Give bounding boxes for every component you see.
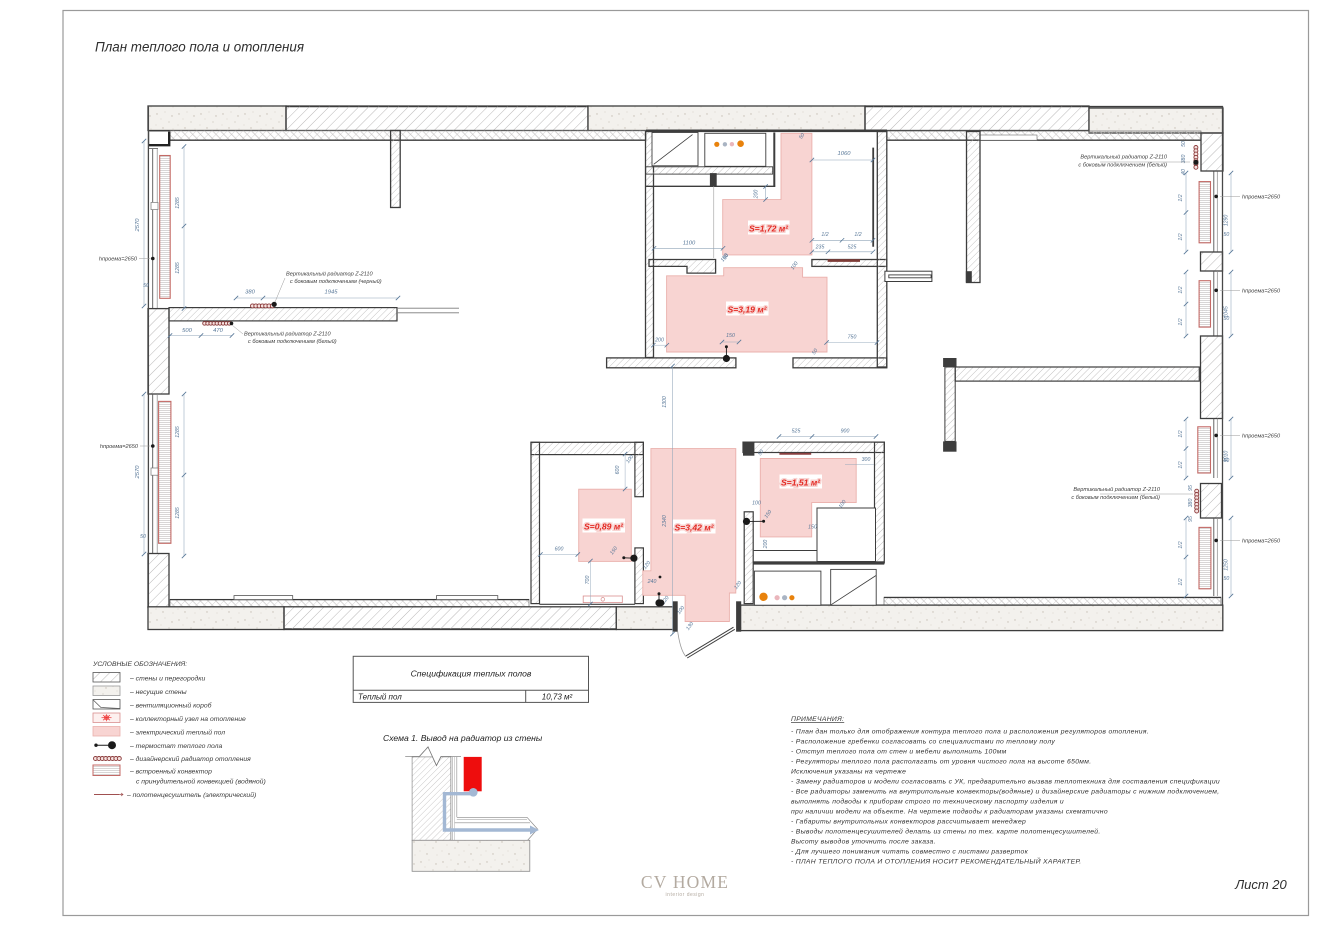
svg-text:hпроема=2650: hпроема=2650 <box>99 257 138 263</box>
svg-text:1250: 1250 <box>1224 559 1230 571</box>
svg-text:Вертикальный радиатор Z-2110: Вертикальный радиатор Z-2110 <box>1080 154 1167 161</box>
svg-text:Вертикальный радиатор Z-2110: Вертикальный радиатор Z-2110 <box>1073 486 1160 493</box>
svg-text:Теплый пол: Теплый пол <box>358 693 402 702</box>
svg-text:2570: 2570 <box>135 218 141 233</box>
svg-text:900: 900 <box>841 429 850 435</box>
svg-text:с боковым подключением (белый): с боковым подключением (белый) <box>248 338 337 345</box>
svg-text:1/2: 1/2 <box>1178 194 1184 201</box>
svg-text:95: 95 <box>1188 516 1194 522</box>
svg-text:380: 380 <box>1188 499 1194 508</box>
svg-text:- Для лучшего понимания читать: - Для лучшего понимания читать совместно… <box>791 849 1029 856</box>
svg-text:1/2: 1/2 <box>1178 541 1184 548</box>
svg-text:470: 470 <box>213 328 223 334</box>
svg-text:150: 150 <box>726 333 735 339</box>
svg-text:– стены и перегородки: – стены и перегородки <box>129 675 205 683</box>
svg-text:- Расположение гребенки соглас: - Расположение гребенки согласовать со с… <box>791 738 1055 746</box>
svg-text:Вертикальный радиатор Z-2110: Вертикальный радиатор Z-2110 <box>286 271 373 278</box>
svg-text:525: 525 <box>792 429 801 435</box>
svg-text:1/2: 1/2 <box>854 232 861 238</box>
svg-text:– электрический теплый пол: – электрический теплый пол <box>129 729 225 737</box>
svg-text:Схема 1. Вывод на радиатор из: Схема 1. Вывод на радиатор из стены <box>383 733 543 743</box>
svg-text:- Все радиаторы заменить на вн: - Все радиаторы заменить на внутрипольны… <box>791 788 1219 796</box>
svg-text:500: 500 <box>182 328 192 334</box>
svg-text:40: 40 <box>1181 169 1187 175</box>
svg-text:95: 95 <box>1188 485 1194 491</box>
svg-text:200: 200 <box>654 338 664 344</box>
svg-text:hпроема=2650: hпроема=2650 <box>1242 433 1281 439</box>
svg-text:1/2: 1/2 <box>1178 461 1184 468</box>
svg-text:235: 235 <box>815 245 825 251</box>
svg-text:УСЛОВНЫЕ ОБОЗНАЧЕНИЯ:: УСЛОВНЫЕ ОБОЗНАЧЕНИЯ: <box>92 661 187 668</box>
svg-text:План теплого пола и отопления: План теплого пола и отопления <box>95 40 304 55</box>
svg-text:ПРИМЕЧАНИЯ:: ПРИМЕЧАНИЯ: <box>791 716 844 723</box>
svg-text:- Отступ теплого пола от стен: - Отступ теплого пола от стен и мебели в… <box>791 748 1007 756</box>
svg-text:- Регуляторы теплого пола расп: - Регуляторы теплого пола располагать от… <box>791 759 1091 766</box>
svg-text:hпроема=2650: hпроема=2650 <box>1242 538 1281 544</box>
svg-text:S=3,42 м²: S=3,42 м² <box>674 523 714 533</box>
svg-text:CV HOME: CV HOME <box>641 872 729 892</box>
svg-text:с боковым подключением (черный: с боковым подключением (черный) <box>290 278 382 285</box>
svg-text:S=1,51 м²: S=1,51 м² <box>781 478 821 488</box>
svg-text:1285: 1285 <box>175 262 181 274</box>
svg-text:1060: 1060 <box>838 151 852 157</box>
svg-text:380: 380 <box>245 290 255 296</box>
svg-text:100: 100 <box>752 501 761 507</box>
svg-text:1285: 1285 <box>175 507 181 519</box>
svg-text:50: 50 <box>1224 232 1230 238</box>
svg-text:– несущие стены: – несущие стены <box>129 689 187 696</box>
svg-text:- ПЛАН ТЕПЛОГО ПОЛА И ОТОПЛЕНИ: - ПЛАН ТЕПЛОГО ПОЛА И ОТОПЛЕНИЯ НОСИТ РЕ… <box>791 857 1081 866</box>
svg-text:150: 150 <box>808 525 817 531</box>
svg-text:Высоту выводов уточнить после: Высоту выводов уточнить после заказа. <box>791 838 936 846</box>
svg-text:hпроема=2650: hпроема=2650 <box>1242 288 1281 294</box>
svg-text:50: 50 <box>1181 141 1187 147</box>
svg-text:1285: 1285 <box>175 197 181 209</box>
svg-text:2570: 2570 <box>135 465 141 480</box>
svg-text:выполнять подводы к приборам с: выполнять подводы к приборам строго по т… <box>791 798 1064 806</box>
svg-text:S=1,72 м²: S=1,72 м² <box>749 224 789 234</box>
svg-text:50: 50 <box>143 283 149 289</box>
svg-text:Вертикальный радиатор Z-2110: Вертикальный радиатор Z-2110 <box>244 331 331 338</box>
svg-text:hпроема=2650: hпроема=2650 <box>100 444 139 450</box>
svg-text:- Замену радиаторов и модели с: - Замену радиаторов и модели согласовать… <box>791 778 1220 786</box>
svg-text:– вентиляционный короб: – вентиляционный короб <box>129 702 213 710</box>
svg-text:50: 50 <box>140 534 146 540</box>
svg-text:interior design: interior design <box>666 892 705 898</box>
svg-text:1/2: 1/2 <box>1178 233 1184 240</box>
svg-text:с боковым подключением (белый): с боковым подключением (белый) <box>1078 162 1167 169</box>
svg-text:– дизайнерский радиатор отопле: – дизайнерский радиатор отопления <box>129 755 251 763</box>
svg-text:S=3,19 м²: S=3,19 м² <box>727 305 767 315</box>
svg-text:240: 240 <box>647 579 657 585</box>
svg-text:200: 200 <box>754 190 760 200</box>
svg-text:600: 600 <box>615 466 621 475</box>
svg-text:Спецификация теплых полов: Спецификация теплых полов <box>411 669 532 679</box>
svg-text:1300: 1300 <box>662 396 668 408</box>
svg-text:при наличии модели на объекте.: при наличии модели на объекте. На чертеж… <box>791 808 1108 816</box>
svg-text:- Выводы полотенцесушителей де: - Выводы полотенцесушителей делать из ст… <box>791 828 1101 836</box>
svg-text:Исключения указаны на чертеже: Исключения указаны на чертеже <box>791 769 906 776</box>
svg-text:- Габариты внутрипольных конве: - Габариты внутрипольных конвекторов рас… <box>791 818 1026 826</box>
svg-text:- План дан только для отображе: - План дан только для отображения контур… <box>791 728 1149 736</box>
svg-text:2340: 2340 <box>662 515 668 528</box>
svg-text:1/2: 1/2 <box>1178 430 1184 437</box>
svg-text:– встроенный конвектор: – встроенный конвектор <box>129 768 212 776</box>
svg-text:300: 300 <box>862 457 871 463</box>
svg-text:с боковым подключением (белый): с боковым подключением (белый) <box>1071 494 1160 501</box>
svg-text:1945: 1945 <box>325 290 339 296</box>
svg-text:750: 750 <box>848 335 857 341</box>
svg-text:1285: 1285 <box>175 426 181 438</box>
svg-text:– термостат теплого пола: – термостат теплого пола <box>129 743 223 750</box>
svg-text:Лист 20: Лист 20 <box>1234 877 1287 892</box>
svg-text:с принудительной конвекцией (в: с принудительной конвекцией (водяной) <box>136 778 266 786</box>
svg-text:hпроема=2650: hпроема=2650 <box>1242 194 1281 200</box>
svg-text:1/2: 1/2 <box>1178 318 1184 325</box>
svg-text:1100: 1100 <box>683 241 696 247</box>
svg-text:525: 525 <box>848 245 857 251</box>
svg-text:1290: 1290 <box>1224 215 1230 227</box>
svg-text:1/2: 1/2 <box>821 232 828 238</box>
svg-text:S=0,89 м²: S=0,89 м² <box>584 522 624 532</box>
svg-text:200: 200 <box>763 540 769 550</box>
svg-text:50: 50 <box>1224 458 1230 464</box>
svg-text:– коллекторный узел на отоплен: – коллекторный узел на отопление <box>129 715 246 723</box>
svg-text:– полотенцесушитель (электриче: – полотенцесушитель (электрический) <box>126 791 256 799</box>
svg-text:1/2: 1/2 <box>1178 578 1184 585</box>
svg-text:700: 700 <box>585 576 591 585</box>
svg-text:10,73 м²: 10,73 м² <box>542 693 573 702</box>
svg-text:50: 50 <box>1224 316 1230 322</box>
svg-text:1/2: 1/2 <box>1178 286 1184 293</box>
svg-text:600: 600 <box>555 547 564 553</box>
svg-text:50: 50 <box>1224 576 1230 582</box>
